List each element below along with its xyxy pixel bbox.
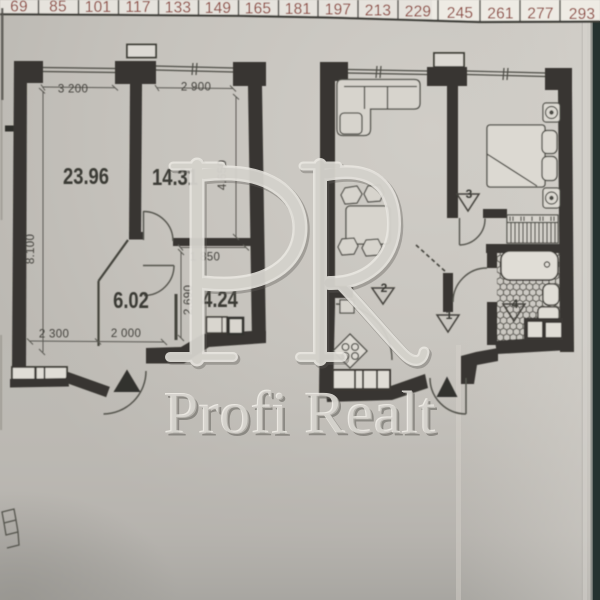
svg-text:2 300: 2 300	[39, 329, 69, 341]
svg-text:133: 133	[165, 0, 191, 17]
svg-text:293: 293	[569, 6, 595, 23]
svg-text:2 000: 2 000	[111, 328, 141, 340]
svg-text:101: 101	[85, 0, 111, 16]
svg-text:2 900: 2 900	[181, 82, 211, 94]
svg-text:261: 261	[487, 5, 513, 22]
svg-text:8.100: 8.100	[25, 234, 37, 264]
svg-text:69: 69	[10, 0, 28, 15]
svg-text:181: 181	[285, 1, 311, 18]
svg-text:197: 197	[325, 2, 351, 19]
svg-text:Profi Realt: Profi Realt	[165, 381, 437, 447]
svg-text:245: 245	[447, 5, 473, 22]
svg-text:85: 85	[49, 0, 67, 16]
svg-text:117: 117	[125, 0, 150, 16]
svg-text:3: 3	[466, 187, 473, 201]
svg-text:6.02: 6.02	[113, 288, 149, 313]
svg-text:277: 277	[527, 5, 553, 22]
svg-text:3 200: 3 200	[58, 84, 88, 96]
svg-text:149: 149	[205, 0, 231, 17]
svg-text:2: 2	[381, 281, 388, 295]
svg-text:23.96: 23.96	[63, 164, 109, 189]
svg-text:1: 1	[446, 308, 453, 322]
svg-text:165: 165	[245, 0, 271, 17]
svg-text:213: 213	[365, 2, 391, 19]
svg-text:229: 229	[405, 3, 431, 20]
svg-text:4: 4	[512, 297, 519, 311]
